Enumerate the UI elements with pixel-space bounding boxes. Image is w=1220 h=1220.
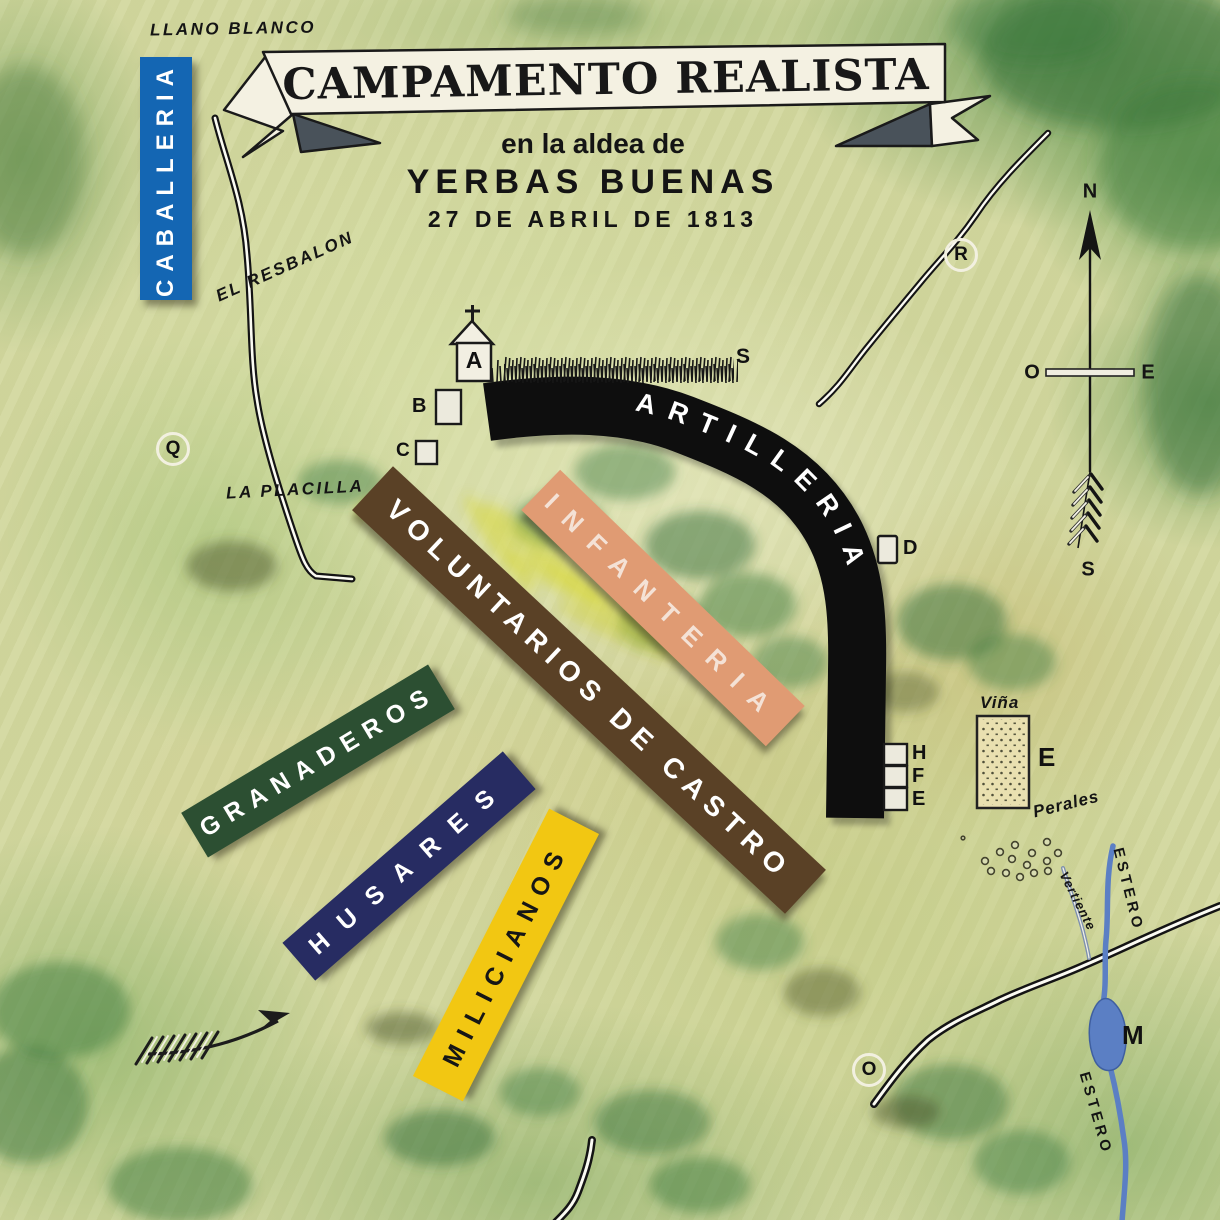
compass-east-label: E xyxy=(1141,362,1154,385)
circle-o-label: O xyxy=(862,1059,877,1081)
building-h-square xyxy=(884,744,907,765)
map-subtitle-line1: en la aldea de xyxy=(393,128,793,160)
circle-marker-o: O xyxy=(852,1053,886,1087)
marker-label-e: E xyxy=(912,788,925,811)
map-subtitle-line2: YERBAS BUENAS xyxy=(393,163,793,202)
marker-label-h: H xyxy=(912,742,926,765)
lake xyxy=(1089,999,1126,1071)
marker-label-m-lake: M xyxy=(1122,1020,1144,1051)
map-title: CAMPAMENTO REALISTA xyxy=(272,45,941,115)
marker-label-b: B xyxy=(412,395,426,418)
building-f-square xyxy=(884,766,907,787)
compass-south-label: S xyxy=(1081,559,1094,582)
circle-marker-q: Q xyxy=(156,432,190,466)
advance-arrow-icon xyxy=(136,1010,290,1064)
hedge-line xyxy=(492,352,738,384)
circle-marker-r: R xyxy=(944,238,978,272)
marker-label-e-vina: E xyxy=(1038,742,1055,773)
vineyard xyxy=(977,716,1029,808)
caballeria-label: CABALLERIA xyxy=(152,61,180,297)
orchard-dots xyxy=(961,836,1061,880)
estero-stream xyxy=(1089,846,1126,1220)
marker-label-f: F xyxy=(912,765,924,788)
battle-map: ARTILLERIA xyxy=(0,0,1220,1220)
building-e-square xyxy=(884,788,907,810)
map-subtitle-date: 27 DE ABRIL DE 1813 xyxy=(393,206,793,233)
compass-rose-icon xyxy=(1046,210,1134,548)
place-label-llano-blanco: LLANO BLANCO xyxy=(150,18,316,41)
compass-west-label: O xyxy=(1024,362,1040,385)
building-b-square xyxy=(436,390,461,424)
place-label-vina: Viña xyxy=(980,693,1019,713)
building-c-square xyxy=(416,441,437,464)
unit-band-caballeria: CABALLERIA xyxy=(140,57,192,300)
compass-north-label: N xyxy=(1083,181,1097,204)
circle-q-label: Q xyxy=(166,438,181,460)
marker-label-s-hedge: S xyxy=(736,345,750,369)
road-south xyxy=(556,1140,592,1220)
river-el-resbalon xyxy=(215,118,352,579)
circle-r-label: R xyxy=(954,244,968,266)
river-northeast xyxy=(819,133,1048,404)
marker-label-a-church: A xyxy=(459,347,489,374)
building-d-square xyxy=(878,536,897,563)
marker-label-c: C xyxy=(396,440,410,462)
marker-label-d: D xyxy=(903,537,917,560)
